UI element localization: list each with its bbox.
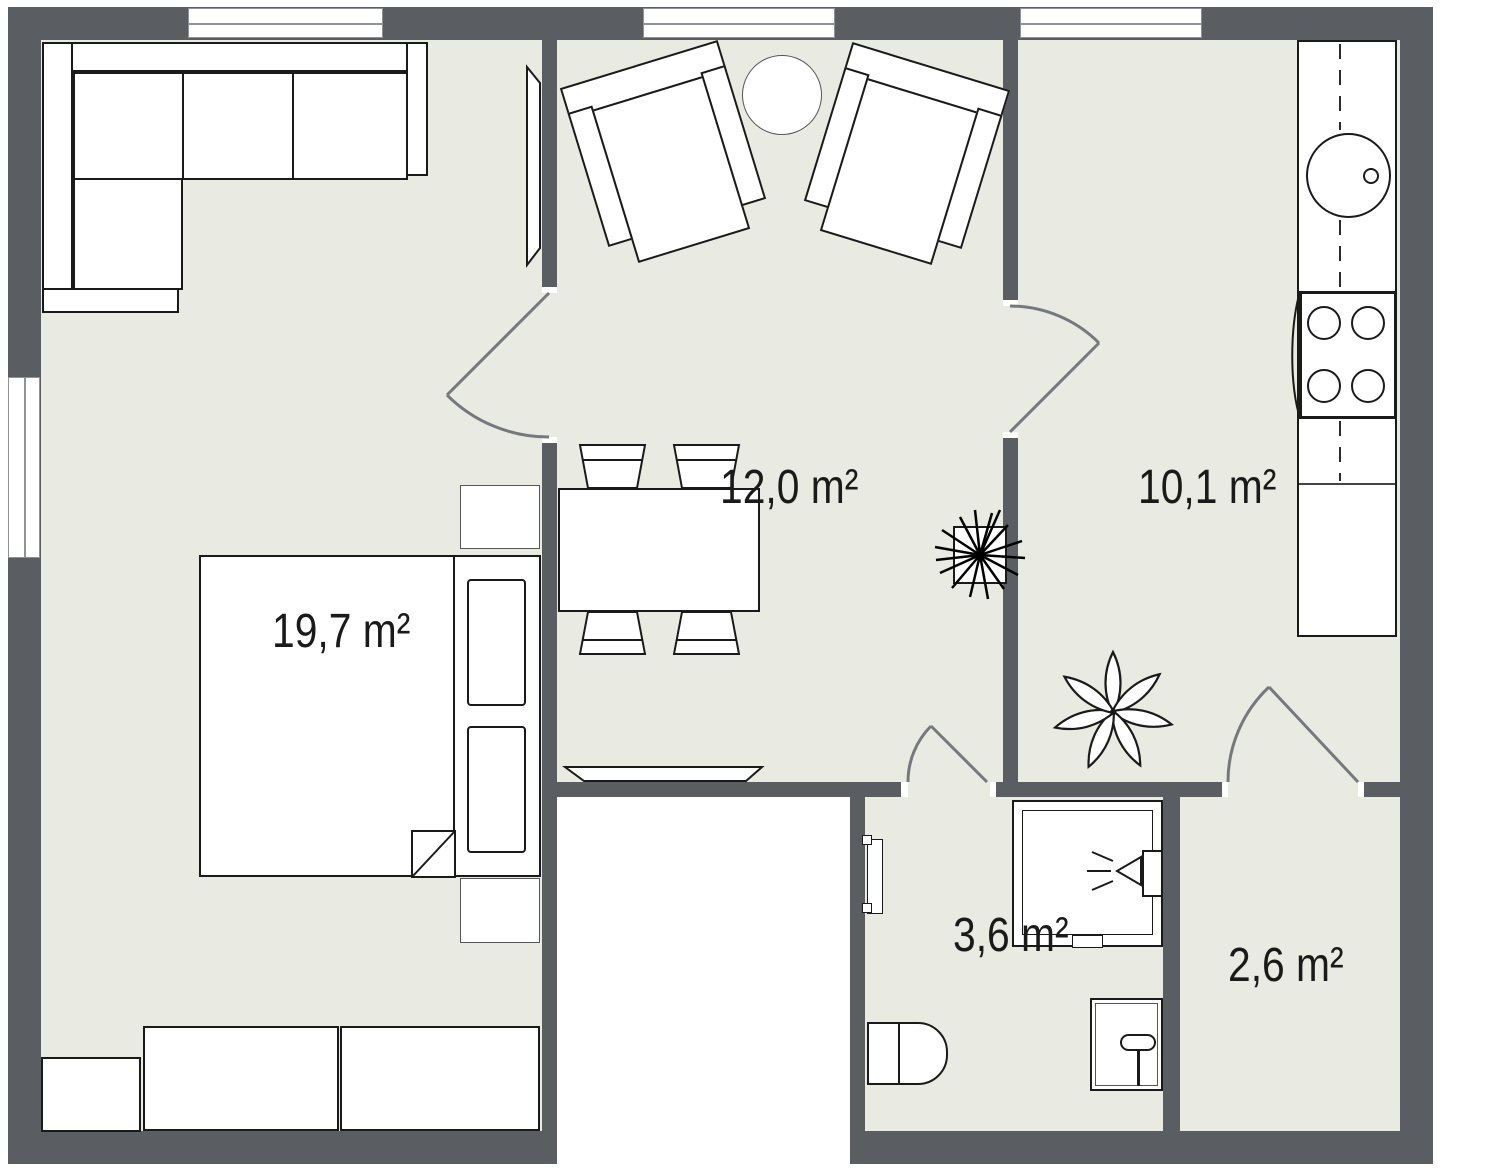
stove-burner: [1307, 306, 1341, 340]
area-label-hallway: 2,6 m²: [1228, 938, 1344, 993]
wall-bathroom-left: [850, 797, 865, 1131]
nightstand: [460, 485, 540, 549]
door-jamb: [1222, 782, 1228, 797]
counter-center-dashline: [1339, 421, 1341, 481]
sink-faucet: [1363, 168, 1379, 184]
door-opening-dining-kitchen: [1003, 306, 1018, 432]
washbasin-faucet: [1120, 1034, 1156, 1051]
wall-living-dining-upper: [542, 40, 557, 287]
wall-mid-bottom-3: [1358, 782, 1400, 797]
sofa-seat-cushion: [292, 72, 408, 180]
window-dining: [643, 8, 835, 38]
counter-center-dashline: [1339, 220, 1341, 290]
door-jamb: [1003, 300, 1018, 306]
floor-plan: 19,7 m² 12,0 m² 10,1 m² 3,6 m² 2,6 m²: [0, 0, 1500, 1173]
nightstand: [460, 878, 540, 943]
door-jamb: [542, 287, 557, 293]
cabinet: [41, 1057, 141, 1132]
wall-bathroom-hallway: [1163, 797, 1180, 1131]
window-living: [188, 8, 383, 38]
window-frame-line: [24, 378, 26, 557]
wall-living-dining-lower: [542, 443, 557, 1131]
wall-mid-bottom-1: [557, 782, 908, 797]
radiator-bracket: [862, 903, 872, 913]
window-frame-line: [644, 23, 834, 25]
door-jamb: [1358, 782, 1364, 797]
sofa-armrest-bottom: [42, 288, 179, 313]
side-table-round: [742, 55, 822, 135]
sofa-seat-cushion: [73, 72, 184, 180]
door-opening-bathroom: [908, 782, 990, 797]
sofa-backrest: [42, 42, 408, 72]
stove-burner: [1351, 369, 1385, 403]
wall-left: [8, 7, 41, 1164]
sofa-chaise-cushion: [73, 178, 183, 290]
door-jamb: [542, 437, 557, 443]
door-jamb: [1003, 432, 1018, 438]
wall-mid-bottom-2: [990, 782, 1222, 797]
door-jamb: [901, 782, 908, 797]
sofa-backrest-left: [42, 42, 73, 290]
wall-dining-kitchen-lower: [1003, 438, 1018, 782]
area-label-bathroom: 3,6 m²: [953, 908, 1069, 963]
sofa-seat-cushion: [182, 72, 294, 180]
door-jamb: [990, 782, 996, 797]
area-label-kitchen: 10,1 m²: [1138, 460, 1276, 515]
counter-division-line: [1299, 483, 1395, 485]
stove-burner: [1307, 369, 1341, 403]
radiator-bracket: [862, 835, 872, 845]
pillow: [467, 579, 526, 706]
pillow: [467, 726, 526, 853]
washbasin-faucet-stem: [1137, 1050, 1140, 1086]
stove-burner: [1351, 306, 1385, 340]
counter-center-dashline: [1339, 44, 1341, 130]
door-opening-living-dining: [542, 293, 557, 437]
shower-valve: [1142, 850, 1163, 897]
wall-bottom-left: [8, 1131, 557, 1164]
wall-bottom-right: [850, 1131, 1433, 1164]
wall-dining-kitchen-upper: [1003, 40, 1018, 306]
shower-step: [1072, 935, 1103, 948]
wall-right: [1400, 7, 1433, 1164]
toilet-tank: [867, 1022, 900, 1085]
window-kitchen: [1020, 8, 1202, 38]
wardrobe-section: [340, 1026, 540, 1131]
area-label-living-bedroom: 19,7 m²: [272, 604, 410, 659]
window-frame-line: [1021, 23, 1201, 25]
sofa-armrest-right: [406, 42, 428, 176]
wardrobe-section: [143, 1026, 339, 1131]
door-opening-hallway: [1228, 782, 1358, 797]
area-label-dining-living: 12,0 m²: [720, 460, 858, 515]
window-frame-line: [189, 23, 382, 25]
window-left-wall: [8, 377, 40, 558]
